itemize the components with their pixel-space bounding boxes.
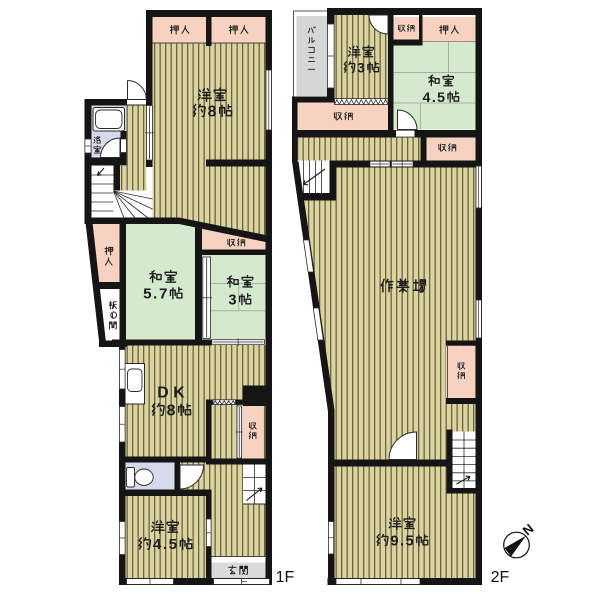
svg-text:3: 3: [228, 293, 236, 309]
svg-text:9: 9: [390, 534, 398, 550]
svg-text:5: 5: [169, 536, 178, 553]
svg-text:3: 3: [357, 60, 365, 76]
svg-text:8: 8: [208, 103, 217, 120]
svg-text:4: 4: [422, 90, 430, 106]
svg-text:2F: 2F: [491, 569, 510, 586]
svg-text:.: .: [432, 90, 436, 106]
svg-text:5: 5: [437, 90, 445, 106]
svg-text:1F: 1F: [276, 569, 295, 586]
svg-text:D: D: [157, 384, 168, 401]
svg-text:.: .: [153, 286, 157, 303]
svg-text:.: .: [163, 536, 167, 553]
svg-text:8: 8: [167, 402, 176, 419]
svg-text:4: 4: [153, 536, 162, 553]
svg-text:.: .: [400, 534, 404, 550]
svg-text:7: 7: [159, 286, 167, 303]
svg-text:5: 5: [406, 534, 414, 550]
svg-text:K: K: [173, 384, 185, 401]
svg-text:5: 5: [143, 286, 152, 303]
